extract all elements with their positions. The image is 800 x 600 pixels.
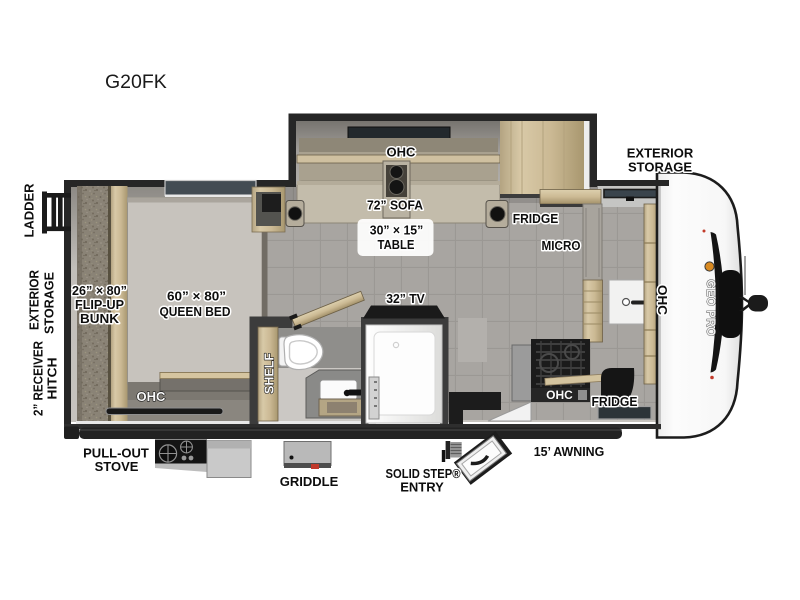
svg-text:STOVE: STOVE — [95, 459, 139, 474]
svg-text:GEO PRO: GEO PRO — [704, 279, 716, 336]
svg-text:26” × 80”: 26” × 80” — [72, 283, 127, 298]
svg-text:GRIDDLE: GRIDDLE — [280, 474, 339, 489]
svg-text:BUNK: BUNK — [80, 311, 120, 326]
svg-text:SHELF: SHELF — [263, 353, 277, 394]
svg-text:30” × 15”: 30” × 15” — [370, 223, 424, 238]
svg-text:STORAGE: STORAGE — [42, 272, 57, 334]
svg-text:EXTERIOR: EXTERIOR — [627, 146, 694, 161]
svg-text:FRIDGE: FRIDGE — [592, 394, 638, 409]
svg-text:32” TV: 32” TV — [386, 291, 425, 306]
svg-text:STORAGE: STORAGE — [628, 160, 692, 175]
svg-text:LADDER: LADDER — [22, 183, 37, 238]
svg-text:G20FK: G20FK — [105, 71, 167, 93]
svg-text:ENTRY: ENTRY — [400, 480, 444, 495]
svg-text:2” RECEIVER: 2” RECEIVER — [31, 340, 46, 416]
svg-text:OHC: OHC — [137, 389, 167, 404]
svg-text:60” × 80”: 60” × 80” — [167, 288, 226, 303]
svg-text:FLIP-UP: FLIP-UP — [75, 297, 124, 312]
svg-text:QUEEN BED: QUEEN BED — [160, 304, 231, 319]
svg-text:MICRO: MICRO — [542, 238, 581, 253]
svg-text:TABLE: TABLE — [378, 237, 415, 252]
svg-text:HITCH: HITCH — [45, 358, 60, 400]
svg-text:FRIDGE: FRIDGE — [513, 211, 559, 226]
svg-text:15’ AWNING: 15’ AWNING — [534, 444, 605, 459]
svg-text:OHC: OHC — [387, 145, 417, 160]
svg-text:OHC: OHC — [546, 388, 573, 402]
svg-text:EXTERIOR: EXTERIOR — [27, 269, 42, 330]
svg-text:72” SOFA: 72” SOFA — [367, 198, 424, 213]
svg-text:OHC: OHC — [655, 285, 670, 316]
